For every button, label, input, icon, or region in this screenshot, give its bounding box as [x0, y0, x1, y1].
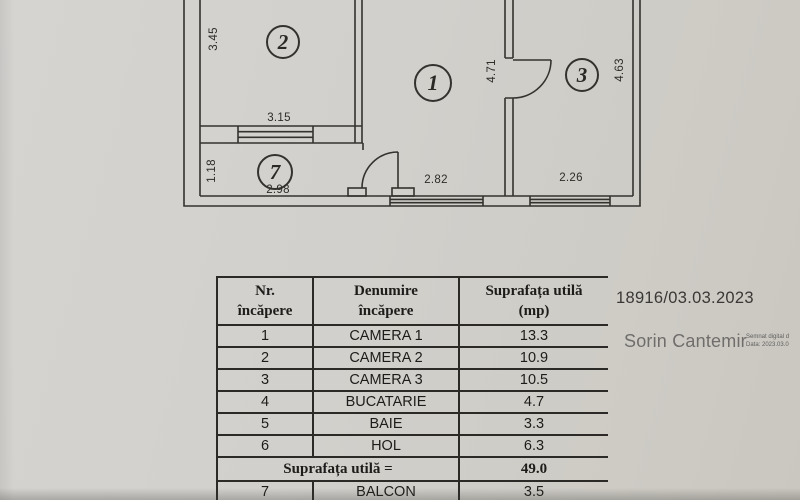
subtotal-value: 49.0 — [459, 457, 608, 481]
door-room1-room3 — [513, 60, 551, 98]
registration-number: 18916/03.03.2023 — [616, 289, 754, 308]
header-denumire: Denumire încăpere — [313, 277, 459, 325]
table-row: 6 HOL 6.3 — [217, 435, 608, 457]
floor-plan-drawing — [0, 0, 800, 230]
header-denumire-line2: încăpere — [314, 301, 458, 321]
window-room3 — [530, 196, 610, 206]
cell-name: CAMERA 3 — [313, 369, 459, 391]
cell-name: CAMERA 1 — [313, 325, 459, 347]
room-number-3: 3 — [565, 58, 599, 92]
header-suprafata: Suprafața utilă (mp) — [459, 277, 608, 325]
dim-balcony-height: 1.18 — [206, 159, 218, 183]
cell-nr: 6 — [217, 435, 313, 457]
wall-room1-room3-upper — [505, 0, 513, 58]
table-row: 3 CAMERA 3 10.5 — [217, 369, 608, 391]
subtotal-label: Suprafața utilă = — [217, 457, 459, 481]
cell-nr: 3 — [217, 369, 313, 391]
wall-room2-room1 — [355, 0, 362, 143]
scanned-floor-plan-document: { "plan": { "rooms": { "room1": "1", "ro… — [0, 0, 800, 500]
header-suprafata-line1: Suprafața utilă — [460, 281, 608, 301]
dim-room3-height: 4.63 — [614, 58, 626, 82]
header-denumire-line1: Denumire — [314, 281, 458, 301]
dim-room2-height: 3.45 — [208, 27, 220, 51]
cell-name: BUCATARIE — [313, 391, 459, 413]
window-room2-balcony — [238, 126, 313, 143]
digital-signature-details: Semnat digital d Data: 2023.03.0 — [746, 334, 789, 349]
subtotal-row: Suprafața utilă = 49.0 — [217, 457, 608, 481]
window-room1 — [390, 196, 483, 206]
photo-shading-bottom — [0, 488, 800, 500]
cell-name: CAMERA 2 — [313, 347, 459, 369]
table-header-row: Nr. încăpere Denumire încăpere Suprafața… — [217, 277, 608, 325]
header-nr-line1: Nr. — [218, 281, 312, 301]
door-balcony — [362, 152, 398, 188]
cell-name: HOL — [313, 435, 459, 457]
cell-area: 10.5 — [459, 369, 608, 391]
dim-room1-height: 4.71 — [486, 59, 498, 83]
wall-room1-room3-lower — [505, 98, 513, 196]
dim-room1-window: 2.82 — [424, 174, 448, 186]
cell-area: 13.3 — [459, 325, 608, 347]
dim-room3-window: 2.26 — [559, 172, 583, 184]
cell-nr: 1 — [217, 325, 313, 347]
dim-balcony-width: 2.98 — [266, 184, 290, 196]
header-suprafata-line2: (mp) — [460, 301, 608, 321]
dim-room2-width: 3.15 — [267, 112, 291, 124]
cell-nr: 5 — [217, 413, 313, 435]
cell-area: 10.9 — [459, 347, 608, 369]
photo-shading-left — [0, 0, 14, 500]
cell-nr: 2 — [217, 347, 313, 369]
table-row: 1 CAMERA 1 13.3 — [217, 325, 608, 347]
table-row: 4 BUCATARIE 4.7 — [217, 391, 608, 413]
signature-detail-line2: Data: 2023.03.0 — [746, 342, 789, 350]
digital-signature-name: Sorin Cantemir — [624, 331, 747, 352]
cell-nr: 4 — [217, 391, 313, 413]
header-nr: Nr. încăpere — [217, 277, 313, 325]
door-jamb-left — [348, 188, 366, 196]
table-row: 5 BAIE 3.3 — [217, 413, 608, 435]
header-nr-line2: încăpere — [218, 301, 312, 321]
signature-detail-line1: Semnat digital d — [746, 334, 789, 342]
cell-area: 3.3 — [459, 413, 608, 435]
cell-area: 4.7 — [459, 391, 608, 413]
cell-name: BAIE — [313, 413, 459, 435]
table-row: 2 CAMERA 2 10.9 — [217, 347, 608, 369]
door-jamb-right — [392, 188, 414, 196]
room-areas-table: Nr. încăpere Denumire încăpere Suprafața… — [216, 276, 608, 500]
room-number-1: 1 — [414, 64, 452, 102]
room-number-2: 2 — [266, 25, 300, 59]
cell-area: 6.3 — [459, 435, 608, 457]
